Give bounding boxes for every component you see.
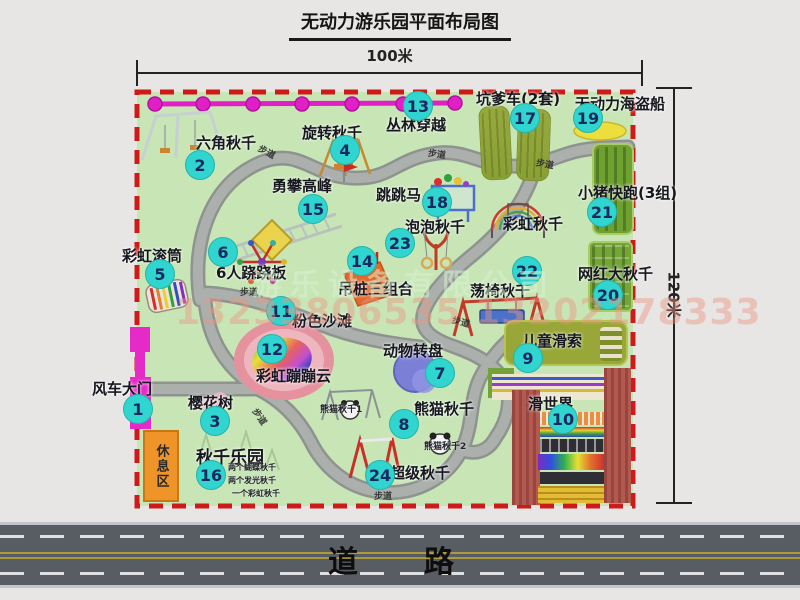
slide-lane-4 bbox=[538, 454, 604, 470]
attraction-23-label: 泡泡秋千 bbox=[405, 216, 465, 237]
swing-note-1: 两个蝴蝶秋千 bbox=[228, 462, 276, 473]
attraction-7-label: 动物转盘 bbox=[383, 340, 443, 361]
windmill-gate-middle bbox=[135, 351, 145, 378]
path-label: 步道 bbox=[427, 146, 447, 161]
attraction-6-badge: 6 bbox=[208, 237, 238, 267]
attraction-5-badge: 5 bbox=[145, 259, 175, 289]
panda-swing-1-label: 熊猫秋千1 bbox=[320, 402, 362, 415]
swing-note-3: 一个彩虹秋千 bbox=[232, 488, 280, 499]
attraction-8-label: 熊猫秋千 bbox=[414, 398, 474, 419]
page-title: 无动力游乐园平面布局图 bbox=[0, 8, 800, 41]
panda-swing-2-label: 熊猫秋千2 bbox=[424, 439, 466, 452]
attraction-1-badge: 1 bbox=[123, 394, 153, 424]
attraction-21-badge: 21 bbox=[587, 197, 617, 227]
slide-lane-5 bbox=[540, 472, 604, 484]
watermark-phone: 13233806535 13202178333 bbox=[175, 292, 762, 333]
attraction-24-label: 超级秋千 bbox=[390, 462, 450, 483]
attraction-16-badge: 16 bbox=[196, 460, 226, 490]
attraction-4-badge: 4 bbox=[330, 135, 360, 165]
attraction-10-badge: 10 bbox=[548, 404, 578, 434]
attraction-15-label: 勇攀高峰 bbox=[272, 175, 332, 196]
attraction-18-label: 跳跳马 bbox=[376, 184, 421, 205]
attraction-2-label: 六角秋千 bbox=[196, 132, 256, 153]
path-label: 步道 bbox=[374, 489, 392, 502]
slide-world-right-wall bbox=[604, 368, 631, 503]
attraction-8-badge: 8 bbox=[389, 409, 419, 439]
attraction-19-badge: 19 bbox=[573, 103, 603, 133]
attraction-7-badge: 7 bbox=[425, 358, 455, 388]
attraction-12-badge: 12 bbox=[257, 334, 287, 364]
slide-lane-3 bbox=[540, 439, 604, 452]
attraction-17-badge: 17 bbox=[510, 103, 540, 133]
pit-car-area-1 bbox=[478, 105, 513, 181]
rest-area-box: 休息区 bbox=[143, 430, 179, 502]
windmill-gate-top bbox=[130, 327, 150, 352]
attraction-3-badge: 3 bbox=[200, 406, 230, 436]
slide-world-area bbox=[488, 368, 636, 505]
attraction-9-badge: 9 bbox=[513, 343, 543, 373]
attraction-20-label: 网红大秋千 bbox=[578, 263, 653, 284]
swing-note-2: 两个发光秋千 bbox=[228, 475, 276, 486]
road-label: 道 路 bbox=[0, 537, 800, 581]
attraction-24-badge: 24 bbox=[365, 460, 395, 490]
attraction-rainbow-swing-label: 彩虹秋千 bbox=[503, 213, 563, 234]
attraction-13-badge: 13 bbox=[403, 91, 433, 121]
road-band: 道 路 bbox=[0, 522, 800, 588]
rest-area-label: 休息区 bbox=[152, 444, 171, 489]
attraction-15-badge: 15 bbox=[298, 194, 328, 224]
width-dimension-label: 100米 bbox=[137, 45, 642, 66]
park-layout-poster: 休息区 无动力游乐园平面布局图 100米 120米 步道 步道 步道 步道 步道… bbox=[0, 0, 800, 600]
attraction-18-badge: 18 bbox=[422, 187, 452, 217]
attraction-23-badge: 23 bbox=[385, 228, 415, 258]
attraction-2-badge: 2 bbox=[185, 150, 215, 180]
attraction-12-label: 彩虹蹦蹦云 bbox=[256, 365, 331, 386]
slide-lane-6 bbox=[538, 486, 604, 503]
